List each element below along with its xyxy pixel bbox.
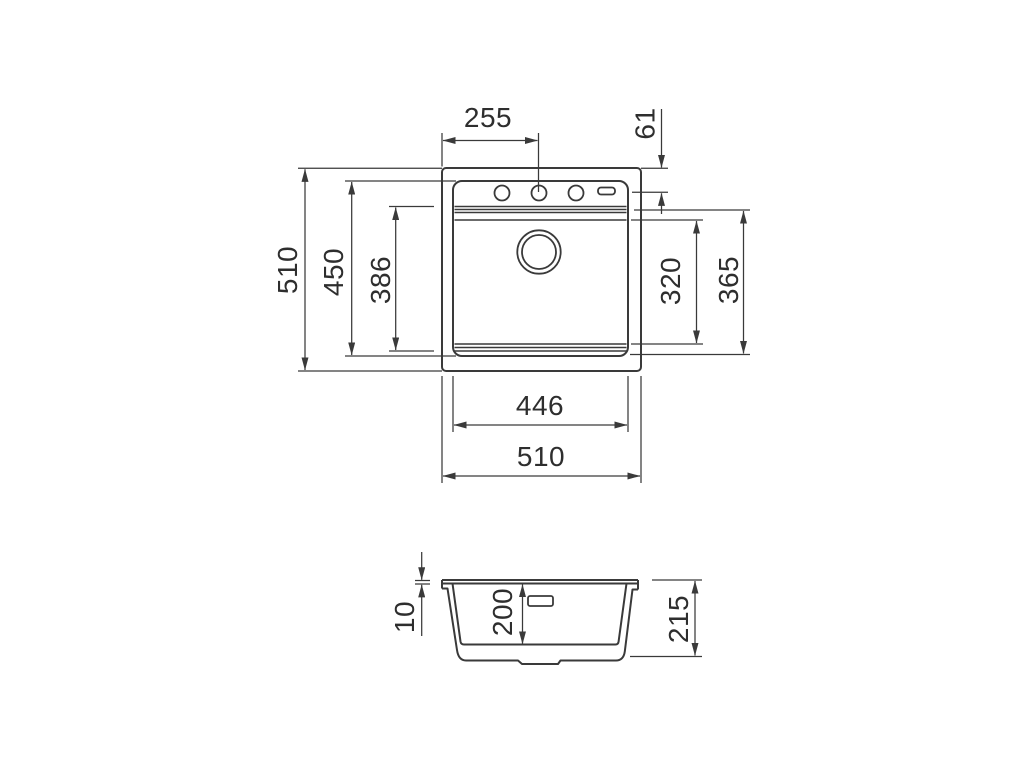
basin-outer-profile <box>442 589 638 665</box>
drawing-canvas: 255 61 510 450 386 <box>0 0 1024 768</box>
dim-bowl-front-depth: 386 <box>365 207 434 352</box>
dim-bowl-inner-width-label: 446 <box>516 390 564 421</box>
dim-bowl-inner-width: 446 <box>453 376 628 432</box>
bowl-bottom-ledge-lines <box>455 344 627 351</box>
dim-bowl-outer-length-label: 365 <box>713 256 744 304</box>
dim-bowl-unit-height-label: 450 <box>318 248 349 296</box>
bowl-top-ledge-lines <box>455 207 627 221</box>
drain-outer-circle <box>517 230 560 273</box>
dim-overall-height: 510 <box>272 168 442 371</box>
dim-overall-width-label: 510 <box>517 441 565 472</box>
dim-rim-thickness-label: 10 <box>389 601 420 633</box>
dim-overall-height-label: 510 <box>272 246 303 294</box>
drain-inner-circle <box>522 235 556 269</box>
faucet-hole-right <box>569 186 584 201</box>
dim-faucet-center-offset: 255 <box>442 102 539 192</box>
overflow-slot-side <box>528 596 553 606</box>
sink-dimension-drawing: 255 61 510 450 386 <box>0 0 1024 768</box>
dim-bowl-depth: 200 <box>487 585 523 645</box>
dim-overall-depth-label: 215 <box>663 595 694 643</box>
dim-bowl-depth-label: 200 <box>487 588 518 636</box>
dim-bowl-front-depth-label: 386 <box>365 256 396 304</box>
dim-bowl-outer-length: 365 <box>630 210 750 355</box>
dim-rim-thickness: 10 <box>389 552 430 636</box>
overflow-slot <box>598 188 615 195</box>
side-view: 10 200 215 <box>389 552 702 664</box>
top-view: 255 61 510 450 386 <box>272 102 750 483</box>
dim-overall-depth: 215 <box>630 580 702 657</box>
basin-inner-profile <box>453 584 627 645</box>
faucet-hole-left <box>495 186 510 201</box>
dim-bowl-inner-length-label: 320 <box>655 257 686 305</box>
dim-faucet-edge-distance: 61 <box>630 107 669 214</box>
dim-faucet-center-offset-label: 255 <box>464 102 512 133</box>
dim-faucet-edge-distance-label: 61 <box>630 107 661 139</box>
